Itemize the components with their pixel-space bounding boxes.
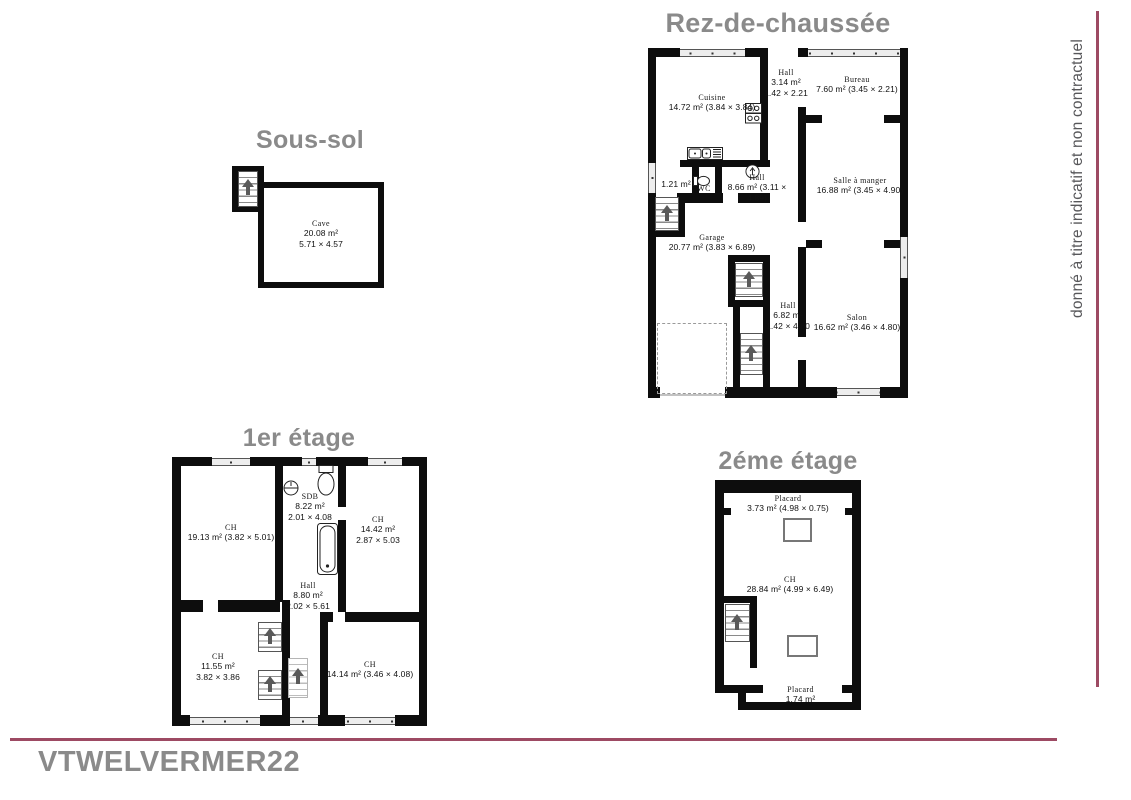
room-area-dims: 3.73 m² (4.98 × 0.75)	[738, 503, 838, 514]
up-arrow-icon	[660, 205, 674, 221]
up-arrow-icon	[730, 614, 744, 630]
room-label-sdb: SDB 8.22 m² 2.01 × 4.08	[285, 492, 335, 522]
floor-title-sous-sol: Sous-sol	[230, 126, 390, 155]
up-arrow-icon	[263, 676, 277, 692]
wall-segment	[218, 600, 280, 612]
wall-segment	[715, 480, 861, 493]
wall-segment	[806, 115, 822, 123]
room-name: Bureau	[802, 75, 912, 84]
wall-segment	[258, 282, 384, 288]
room-area: 1.74 m²	[768, 694, 833, 705]
room-label-ch-grande: CH 19.13 m² (3.82 × 5.01)	[181, 523, 281, 543]
room-name: Placard	[768, 685, 833, 694]
garage-door-line	[660, 394, 725, 396]
wall-segment	[728, 255, 735, 305]
wall-segment	[172, 715, 190, 726]
room-label-cuisine: Cuisine 14.72 m² (3.84 × 3.84)	[662, 93, 762, 113]
room-area: 1.21 m²	[657, 179, 695, 190]
room-name: Hall	[764, 301, 812, 310]
room-label-hall: Hall 8.80 m² 2.02 × 5.61	[278, 581, 338, 611]
room-area-dims: 19.13 m² (3.82 × 5.01)	[181, 532, 281, 543]
up-arrow-icon	[291, 668, 305, 684]
window	[808, 49, 900, 57]
room-name: CH	[181, 523, 281, 532]
window	[837, 388, 880, 396]
parking-space-outline	[657, 323, 727, 394]
room-label-ch-droite: CH 14.42 m² 2.87 × 5.03	[342, 515, 414, 545]
room-area: 20.08 m²	[281, 228, 361, 239]
window	[368, 458, 402, 466]
bathtub-icon	[317, 523, 338, 575]
wall-segment	[900, 278, 908, 398]
room-label-wc: WC	[693, 184, 715, 193]
room-name: Salon	[792, 313, 922, 322]
wall-segment	[798, 107, 806, 222]
wall-segment	[724, 508, 731, 515]
room-dims: 3.82 × 3.86	[178, 672, 258, 683]
plan-rez-de-chaussee: Cuisine 14.72 m² (3.84 × 3.84) Hall 3.14…	[645, 45, 911, 403]
wall-segment	[173, 600, 203, 612]
window	[345, 717, 395, 725]
room-name: Cuisine	[662, 93, 762, 102]
window	[190, 717, 260, 725]
room-name: Placard	[738, 494, 838, 503]
room-name: Hall	[717, 173, 797, 182]
room-name: Hall	[278, 581, 338, 590]
room-area: 11.55 m²	[178, 661, 258, 672]
room-area: 14.42 m²	[342, 524, 414, 535]
window	[680, 49, 745, 57]
room-name: CH	[315, 660, 425, 669]
wall-segment	[172, 457, 181, 726]
plan-1er-etage: CH 19.13 m² (3.82 × 5.01) SDB 8.22 m² 2.…	[170, 455, 428, 732]
room-dims: 2.02 × 5.61	[278, 601, 338, 612]
room-dims: 2.87 × 5.03	[342, 535, 414, 546]
room-name: SDB	[285, 492, 335, 501]
window	[648, 163, 656, 193]
up-arrow-icon	[742, 271, 756, 287]
wall-segment	[648, 48, 680, 57]
room-area: 8.22 m²	[285, 501, 335, 512]
room-label-salon: Salon 16.62 m² (3.46 × 4.80)	[792, 313, 922, 333]
room-label-ch-bas-droite: CH 14.14 m² (3.46 × 4.08)	[315, 660, 425, 680]
wall-segment	[884, 240, 900, 248]
room-name: CH	[342, 515, 414, 524]
wall-segment	[378, 182, 384, 288]
wall-segment	[338, 465, 346, 507]
room-area-dims: 14.72 m² (3.84 × 3.84)	[662, 102, 762, 113]
room-label-wc-area: 1.21 m²	[657, 179, 695, 190]
room-label-placard-haut: Placard 3.73 m² (4.98 × 0.75)	[738, 494, 838, 514]
room-label-bureau: Bureau 7.60 m² (3.45 × 2.21)	[802, 75, 912, 95]
floor-title-1er-etage: 1er étage	[170, 424, 428, 453]
watermark-text: VTWELVERMER22	[38, 746, 300, 779]
wall-segment	[852, 480, 861, 708]
room-label-garage: Garage 20.77 m² (3.83 × 6.89)	[662, 233, 762, 253]
room-name: WC	[693, 184, 715, 193]
skylight-window	[787, 635, 818, 657]
divider-line-bottom	[10, 738, 1057, 741]
room-label-cave: Cave 20.08 m² 5.71 × 4.57	[281, 219, 361, 249]
up-arrow-icon	[241, 179, 255, 195]
room-label-hall: Hall 8.66 m² (3.11 × 4.89)	[717, 173, 797, 203]
window	[302, 458, 316, 466]
floorplan-sheet: Rez-de-chaussée Sous-sol 1er étage 2éme …	[0, 0, 1131, 800]
room-area-dims: 16.88 m² (3.45 × 4.90)	[795, 185, 925, 196]
wall-segment	[806, 240, 822, 248]
room-name: Cave	[281, 219, 361, 228]
wall-segment	[733, 307, 740, 392]
wall-segment	[798, 360, 806, 398]
room-name: Salle à manger	[795, 176, 925, 185]
room-area-dims: 20.77 m² (3.83 × 6.89)	[662, 242, 762, 253]
wall-segment	[725, 387, 837, 398]
skylight-window	[783, 518, 812, 542]
window	[288, 717, 318, 725]
room-label-ch-bas-gauche: CH 11.55 m² 3.82 × 3.86	[178, 652, 258, 682]
up-arrow-icon	[744, 345, 758, 361]
window	[900, 237, 908, 278]
wall-segment	[395, 715, 427, 726]
window	[212, 458, 250, 466]
wall-segment	[880, 387, 908, 398]
wall-segment	[258, 182, 384, 188]
wall-segment	[419, 457, 427, 726]
wall-segment	[842, 685, 861, 693]
room-area-dims: 7.60 m² (3.45 × 2.21)	[802, 84, 912, 95]
room-dims: 5.71 × 4.57	[281, 239, 361, 250]
wall-segment	[798, 48, 808, 57]
room-area-dims: 8.66 m² (3.11 × 4.89)	[717, 182, 797, 203]
disclaimer-text: donné à titre indicatif et non contractu…	[1069, 39, 1087, 318]
floor-title-rez-de-chaussee: Rez-de-chaussée	[645, 8, 911, 39]
room-label-salle-a-manger: Salle à manger 16.88 m² (3.45 × 4.90)	[795, 176, 925, 196]
plan-2eme-etage: Placard 3.73 m² (4.98 × 0.75) CH 28.84 m…	[713, 478, 863, 715]
divider-line-right	[1096, 11, 1099, 687]
up-arrow-icon	[263, 628, 277, 644]
disclaimer-vertical-text: donné à titre indicatif et non contractu…	[1069, 318, 1089, 338]
wall-segment	[715, 480, 724, 693]
wall-segment	[845, 508, 852, 515]
room-label-ch: CH 28.84 m² (4.99 × 6.49)	[740, 575, 840, 595]
wall-segment	[884, 115, 900, 123]
floor-title-2eme-etage: 2éme étage	[713, 447, 863, 476]
room-area-dims: 28.84 m² (4.99 × 6.49)	[740, 584, 840, 595]
room-name: Garage	[662, 233, 762, 242]
wall-segment	[648, 48, 656, 163]
wall-segment	[258, 182, 264, 288]
room-area-dims: 14.14 m² (3.46 × 4.08)	[315, 669, 425, 680]
room-area-dims: 16.62 m² (3.46 × 4.80)	[792, 322, 922, 333]
room-area: 8.80 m²	[278, 590, 338, 601]
plan-sous-sol: Cave 20.08 m² 5.71 × 4.57	[230, 163, 390, 295]
wall-segment	[345, 612, 419, 622]
kitchen-sink-icon	[687, 147, 723, 160]
wall-segment	[750, 596, 757, 668]
room-name: CH	[740, 575, 840, 584]
room-dims: 2.01 × 4.08	[285, 512, 335, 523]
room-label-placard-bas: Placard 1.74 m²	[768, 685, 833, 705]
room-name: CH	[178, 652, 258, 661]
